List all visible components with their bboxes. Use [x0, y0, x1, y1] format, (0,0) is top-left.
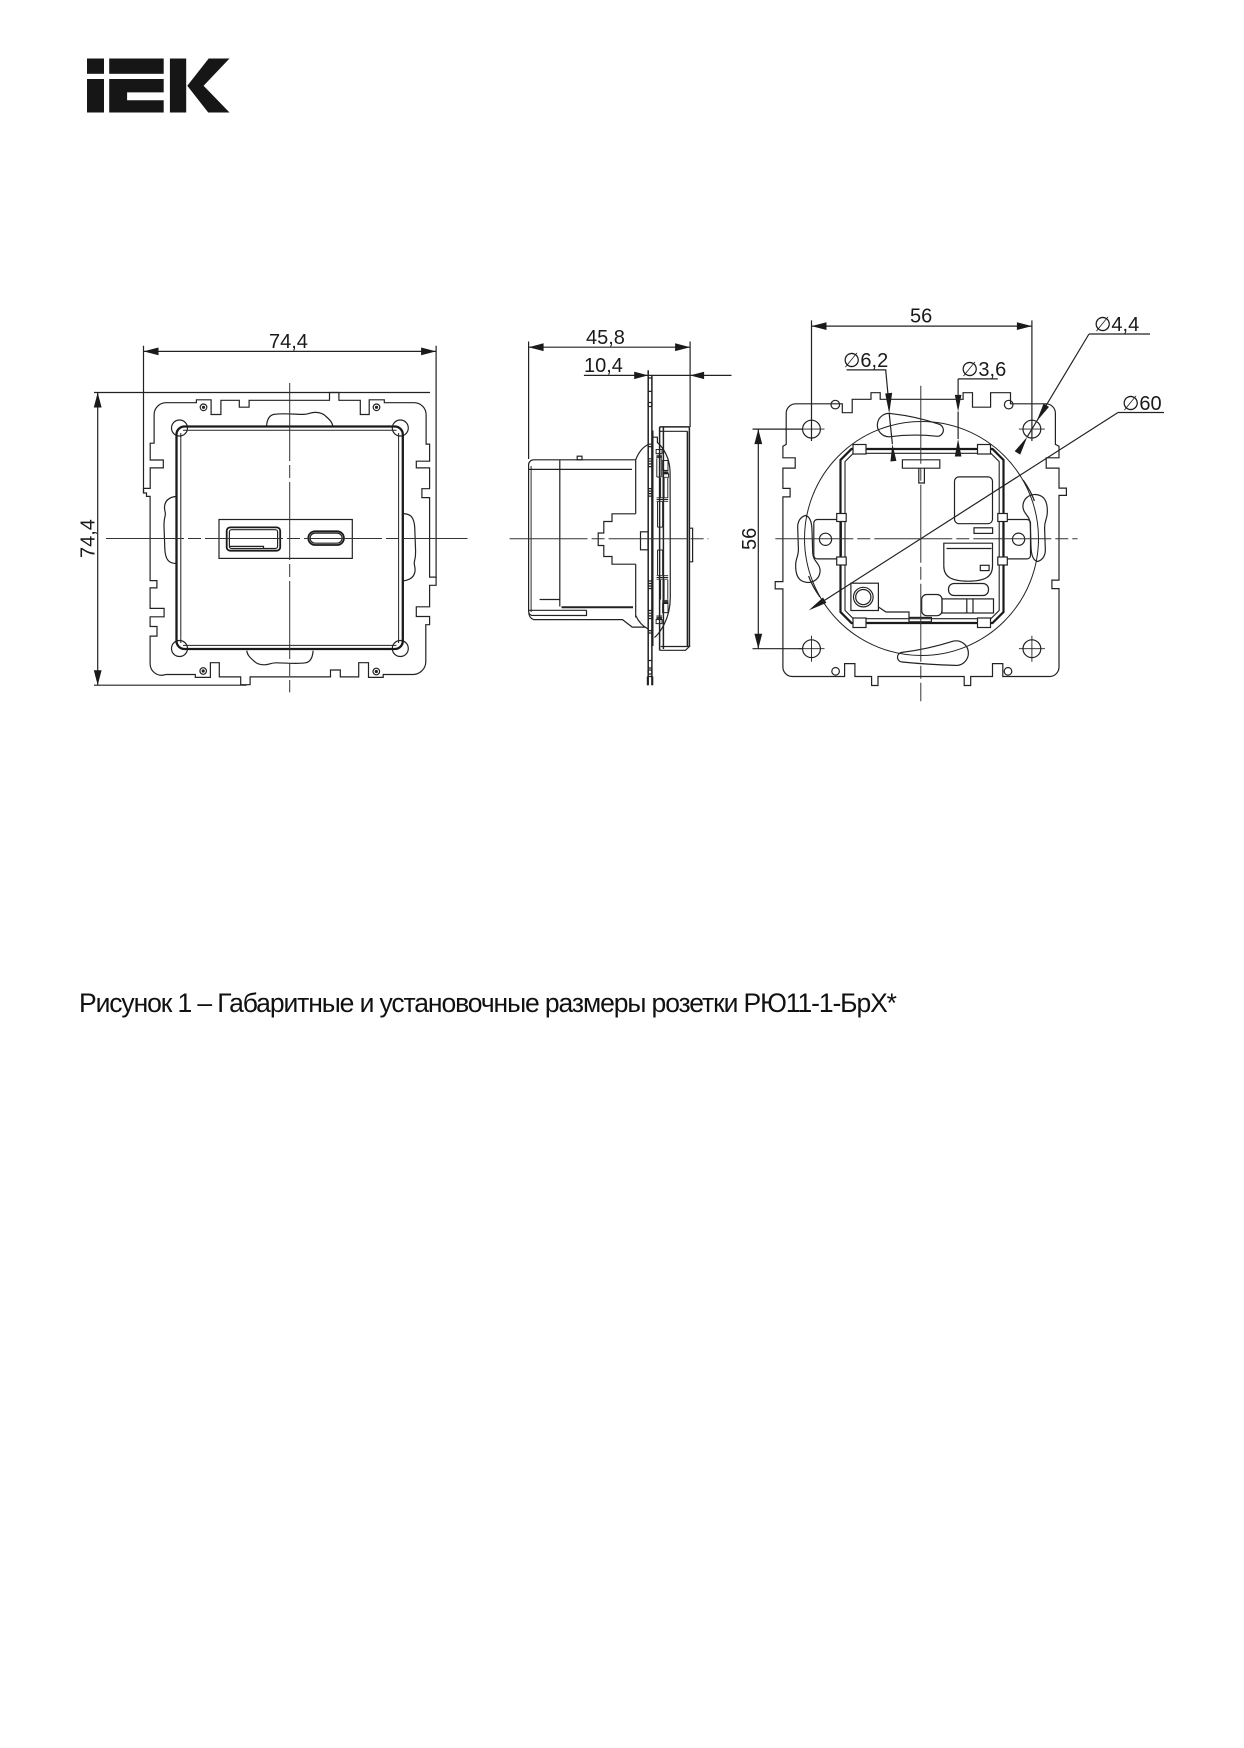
- svg-text:∅3,6: ∅3,6: [961, 359, 1006, 381]
- svg-text:∅4,4: ∅4,4: [1094, 314, 1139, 336]
- svg-text:56: 56: [739, 528, 761, 550]
- svg-text:10,4: 10,4: [584, 355, 623, 377]
- svg-text:56: 56: [910, 306, 932, 328]
- svg-text:45,8: 45,8: [586, 327, 625, 349]
- svg-text:74,4: 74,4: [269, 331, 308, 353]
- svg-text:∅60: ∅60: [1122, 393, 1162, 415]
- svg-text:74,4: 74,4: [78, 519, 100, 558]
- svg-text:∅6,2: ∅6,2: [843, 350, 888, 372]
